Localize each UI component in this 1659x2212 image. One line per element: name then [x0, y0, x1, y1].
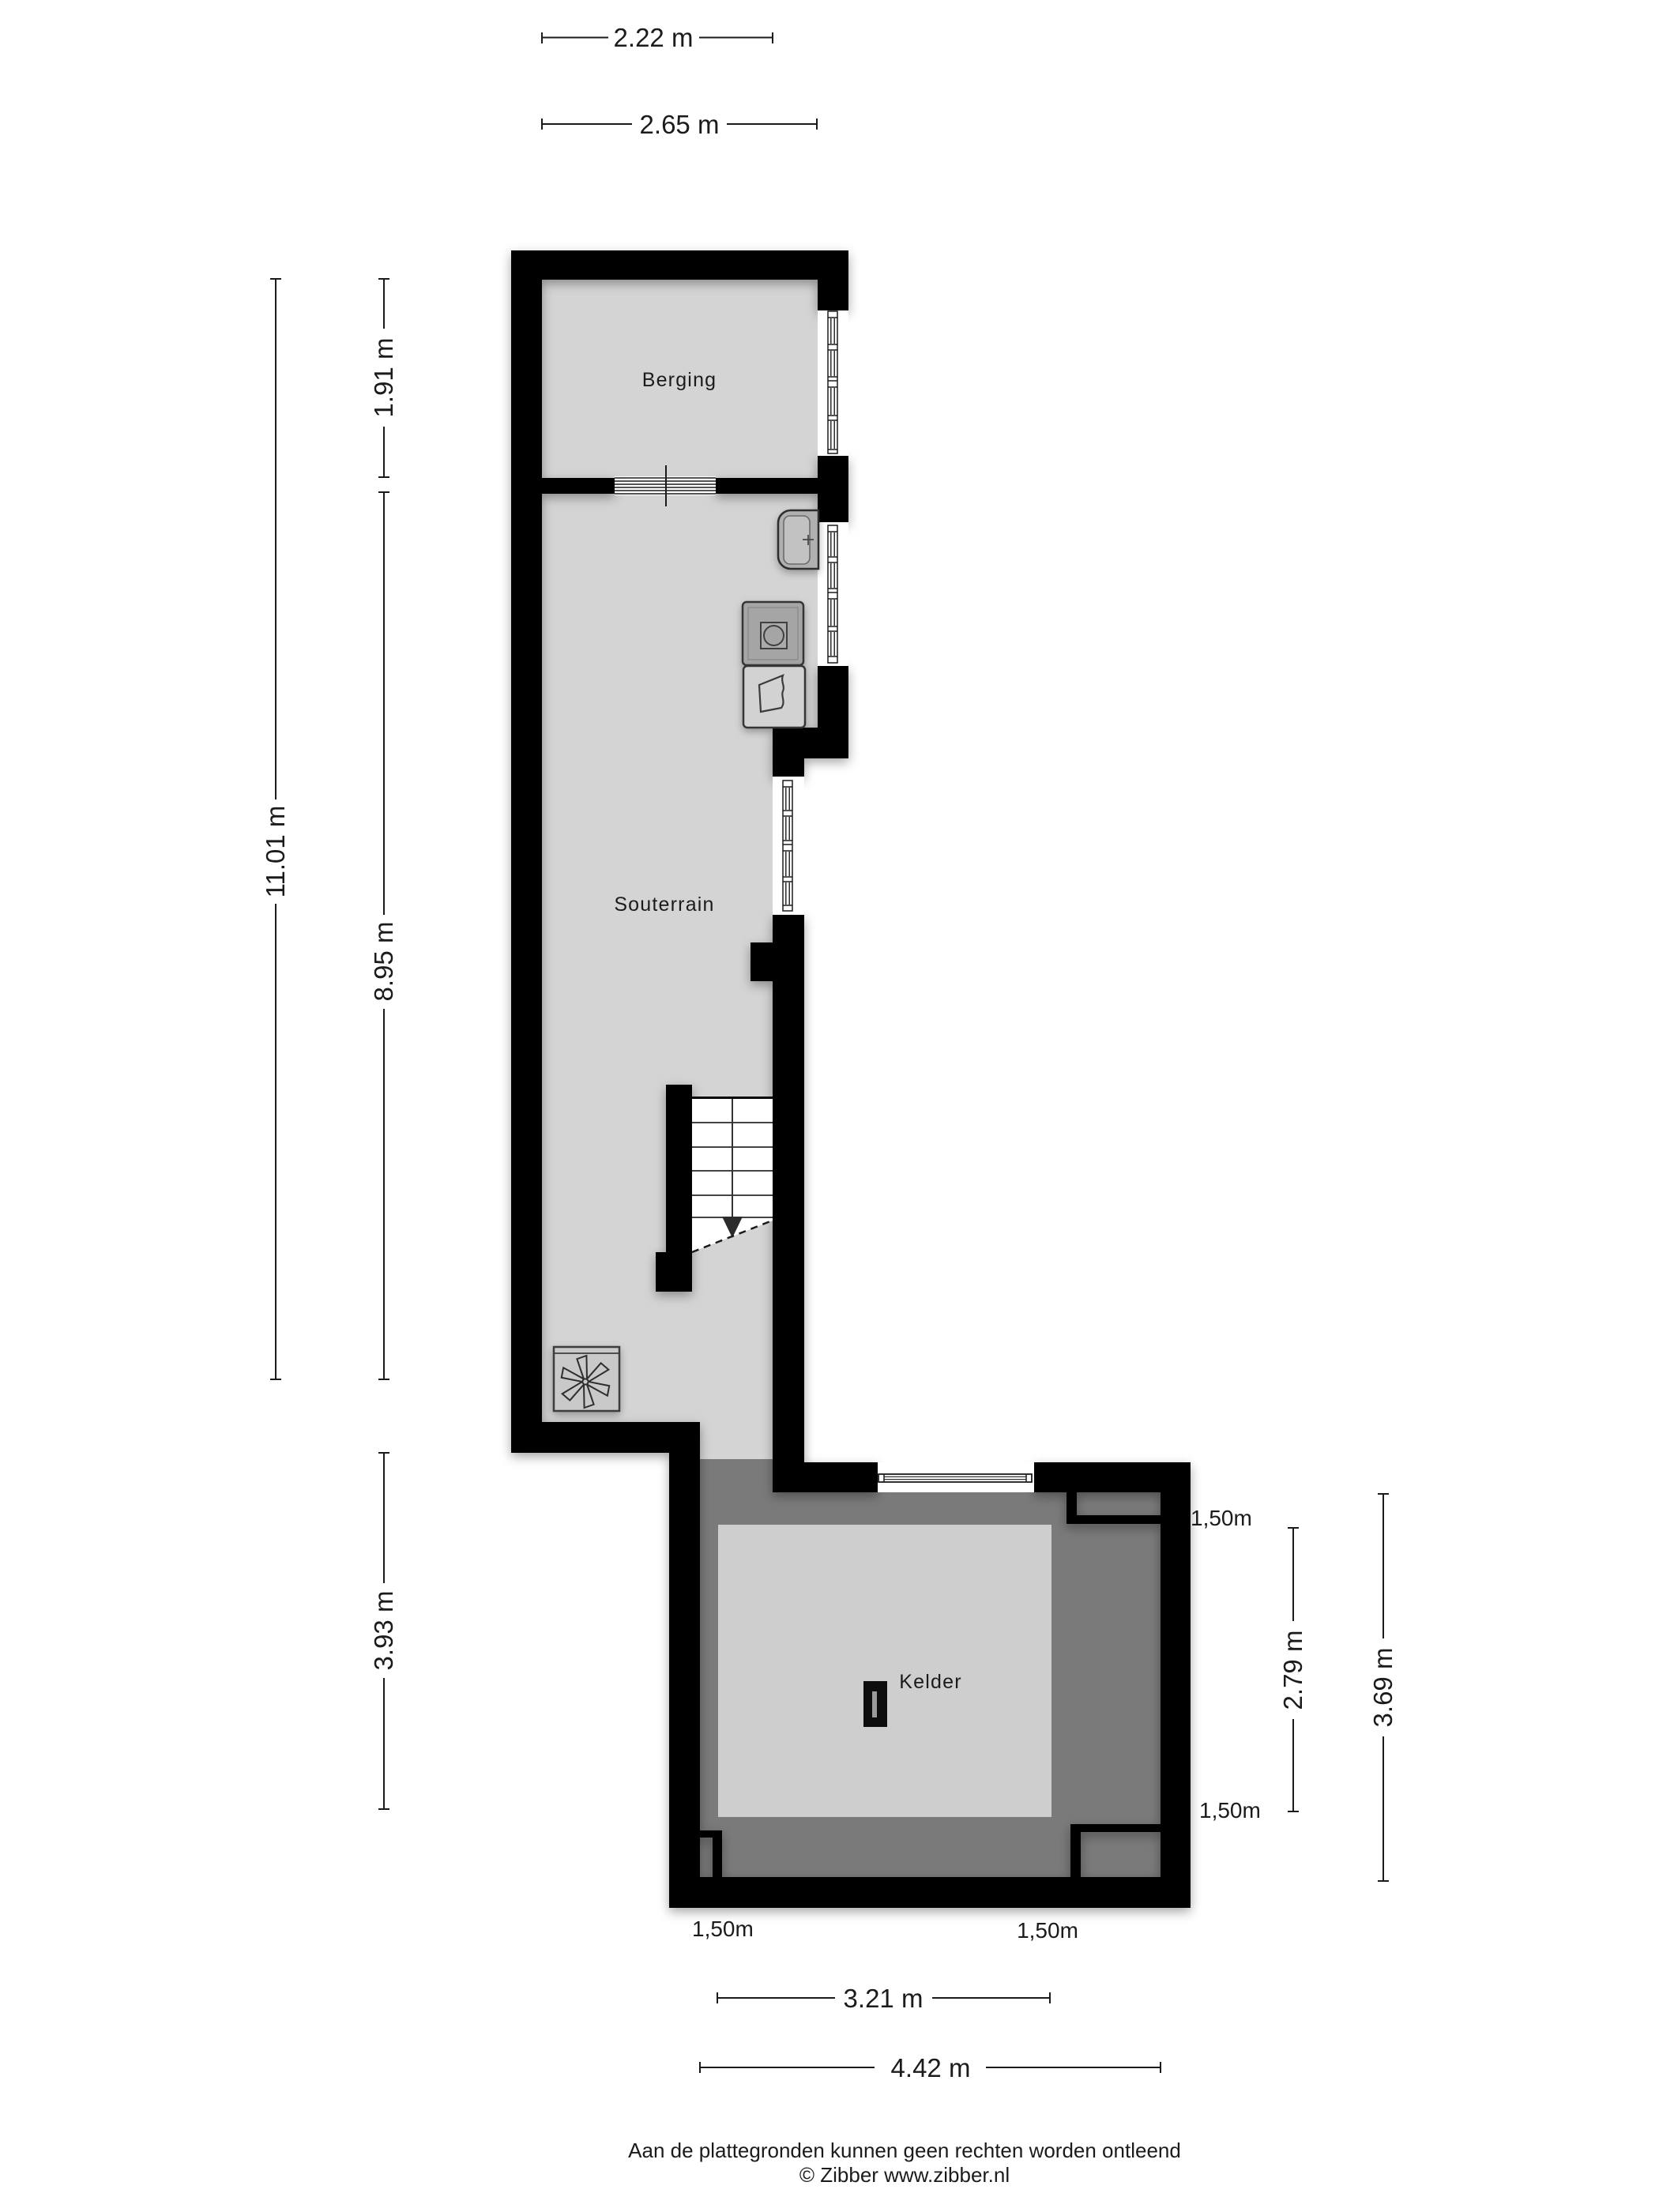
svg-text:2.79 m: 2.79 m: [1278, 1631, 1307, 1710]
svg-text:4.42 m: 4.42 m: [891, 2053, 971, 2082]
svg-text:8.95 m: 8.95 m: [369, 922, 398, 1002]
svg-text:1.91 m: 1.91 m: [369, 338, 398, 418]
svg-text:Berging: Berging: [642, 369, 717, 391]
svg-text:© Zibber www.zibber.nl: © Zibber www.zibber.nl: [799, 2163, 1010, 2187]
svg-text:Kelder: Kelder: [899, 1671, 961, 1693]
svg-text:Souterrain: Souterrain: [614, 893, 714, 916]
svg-text:1,50m: 1,50m: [1191, 1506, 1252, 1530]
svg-text:Aan de plattegronden kunnen ge: Aan de plattegronden kunnen geen rechten…: [628, 2139, 1181, 2162]
svg-text:1,50m: 1,50m: [1199, 1798, 1261, 1823]
svg-text:11.01 m: 11.01 m: [261, 806, 290, 898]
svg-text:1,50m: 1,50m: [1017, 1918, 1078, 1943]
svg-text:2.65 m: 2.65 m: [640, 110, 720, 139]
svg-text:3.93 m: 3.93 m: [369, 1591, 398, 1671]
svg-text:3.69 m: 3.69 m: [1368, 1648, 1398, 1728]
svg-text:3.21 m: 3.21 m: [844, 1984, 924, 2013]
svg-text:1,50m: 1,50m: [692, 1917, 754, 1941]
svg-text:2.22 m: 2.22 m: [614, 23, 694, 52]
